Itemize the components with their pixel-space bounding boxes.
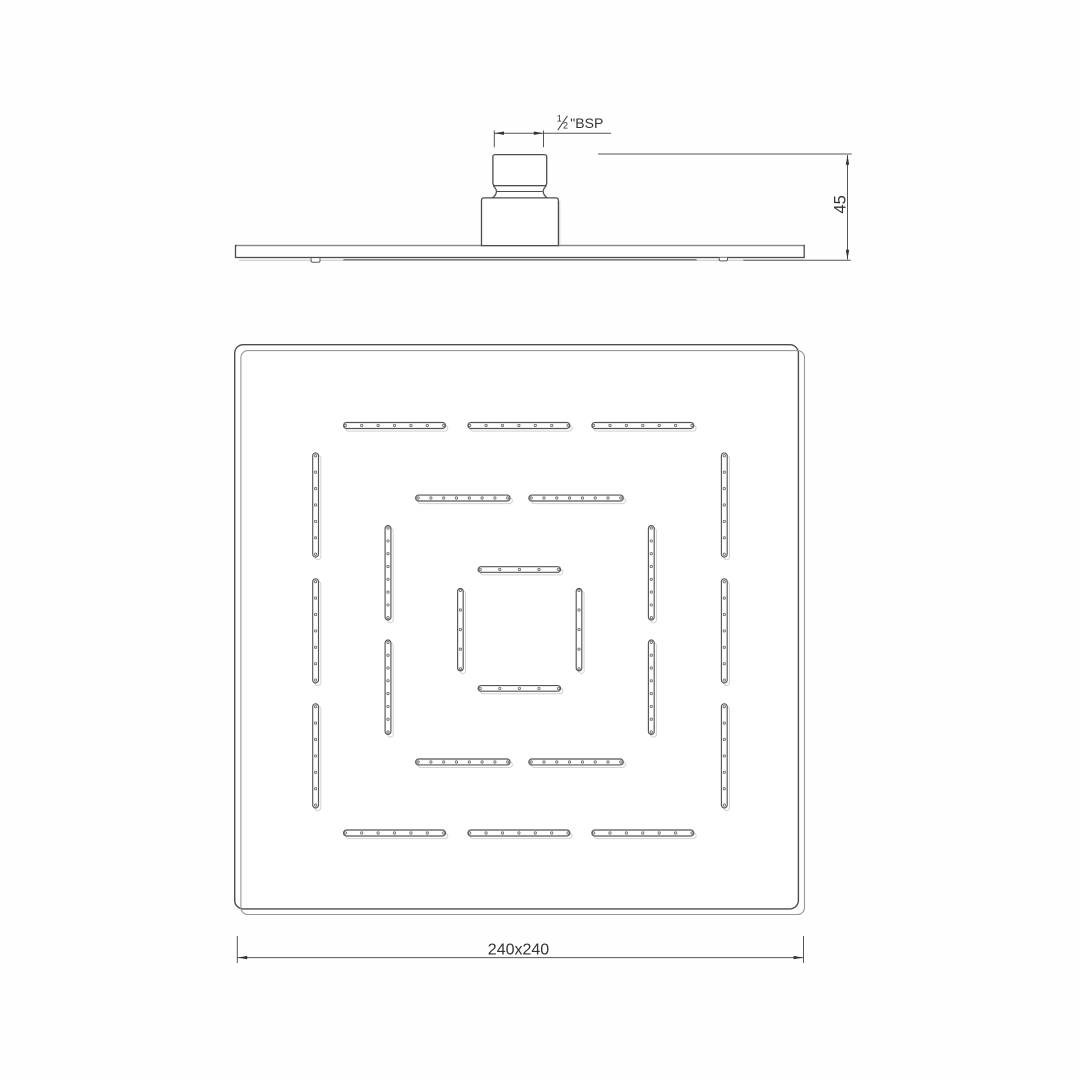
svg-text:"BSP: "BSP <box>570 115 603 131</box>
svg-text:1: 1 <box>557 114 562 124</box>
svg-text:240x240: 240x240 <box>488 942 549 959</box>
svg-text:2: 2 <box>563 121 568 131</box>
svg-text:45: 45 <box>831 195 849 213</box>
